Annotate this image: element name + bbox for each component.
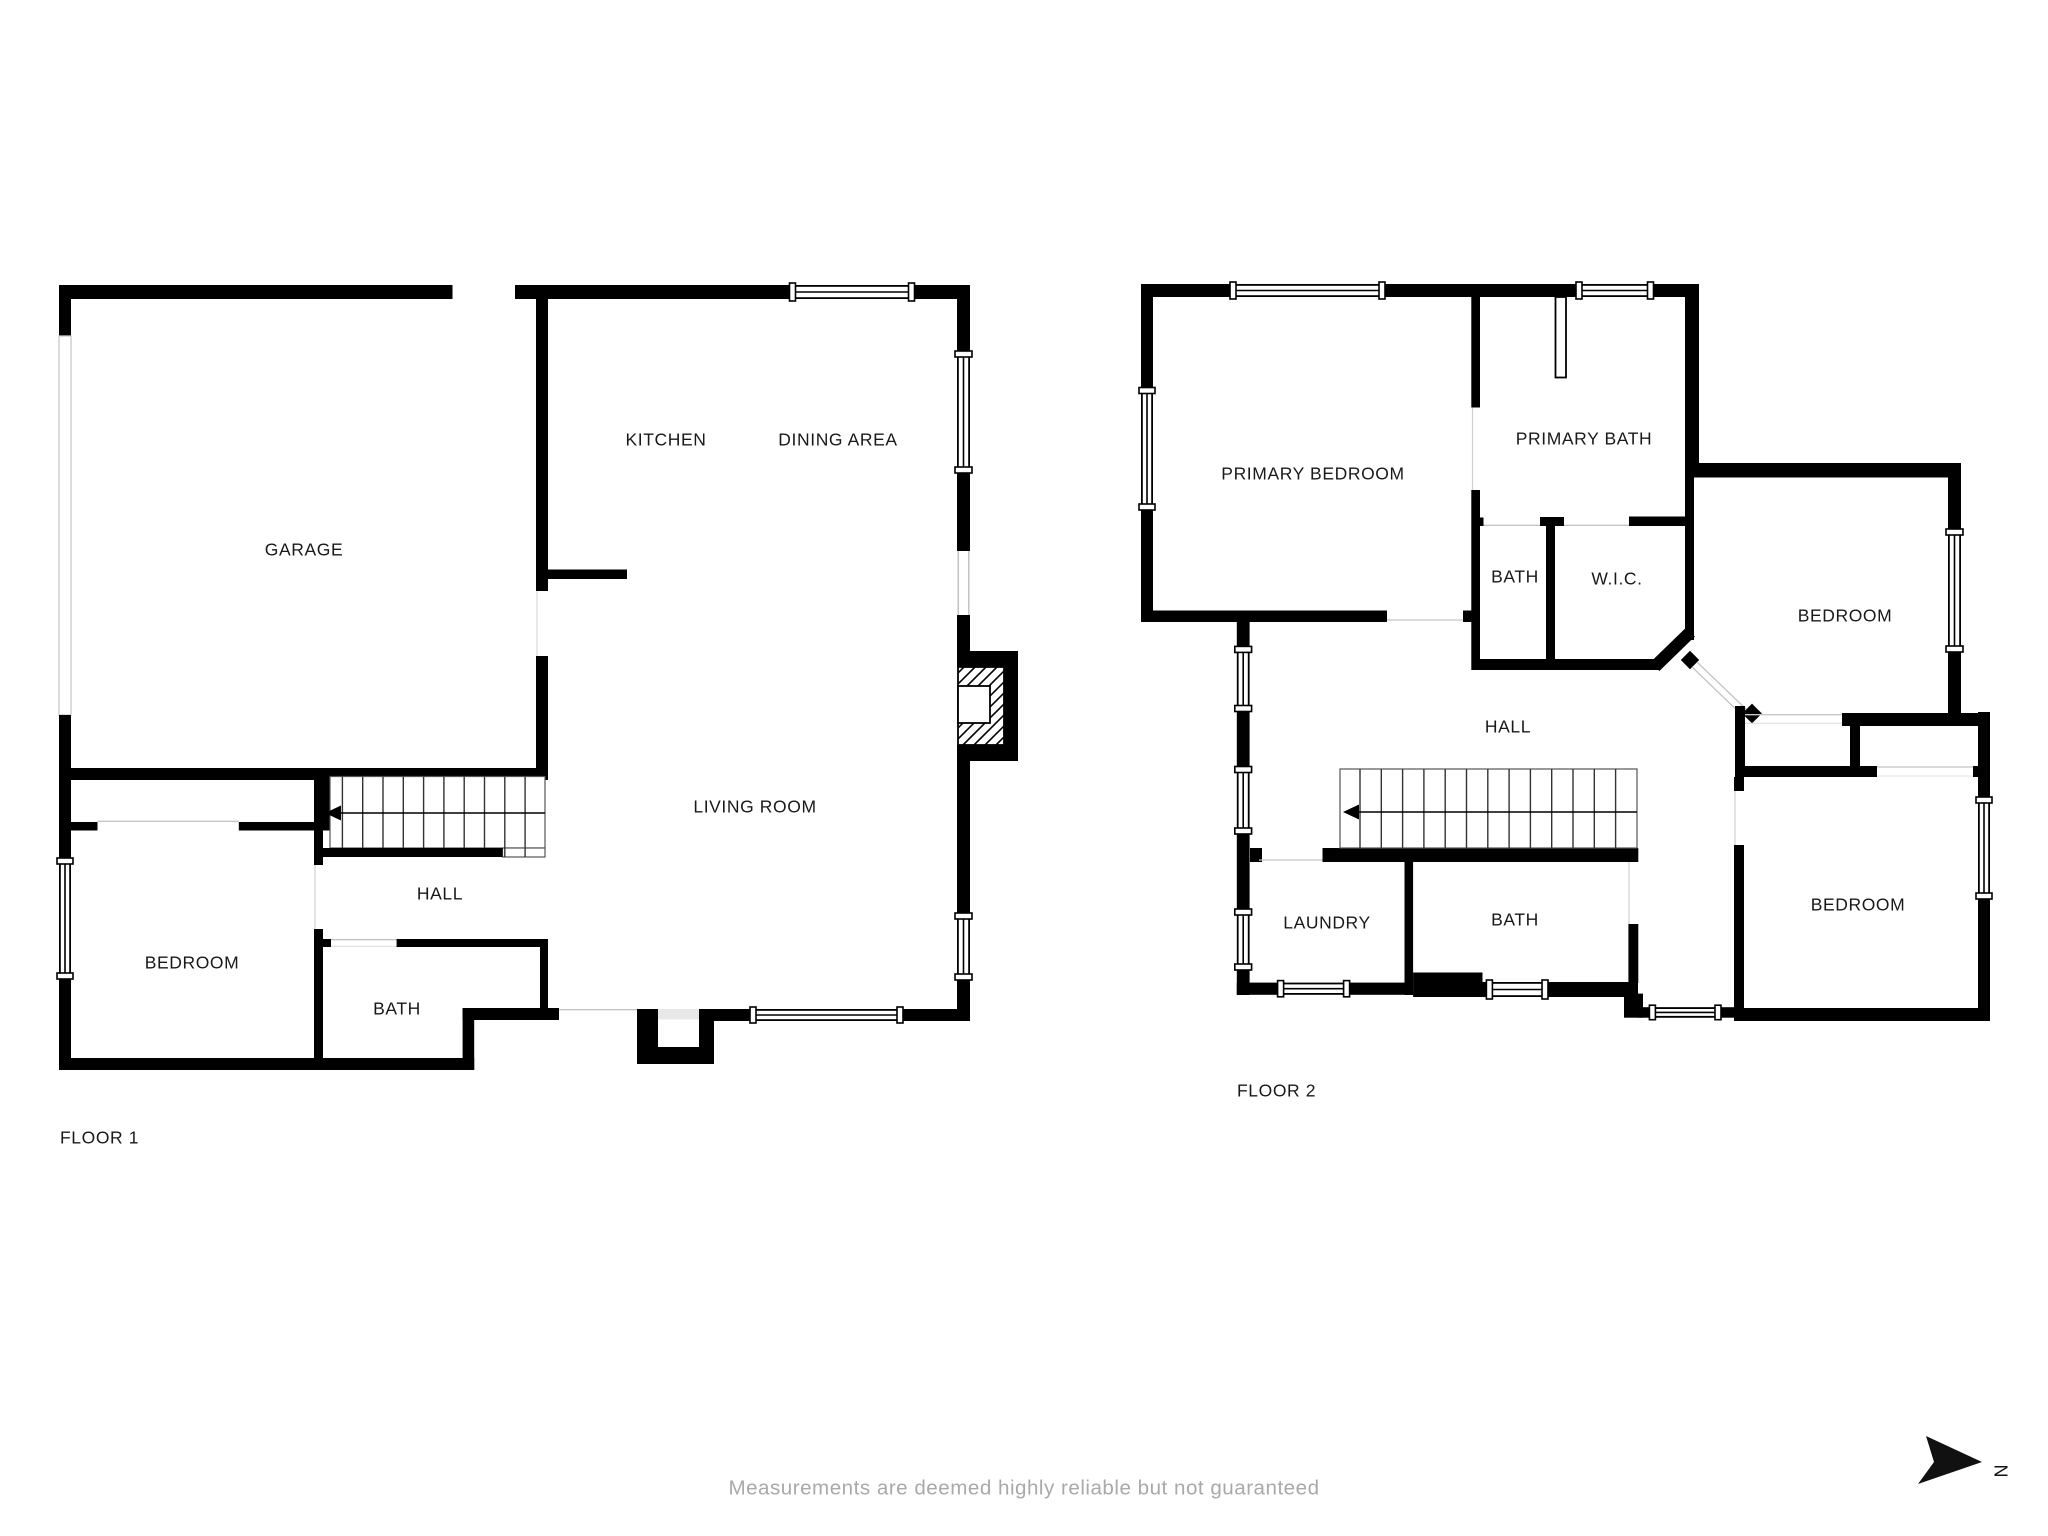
svg-text:W.I.C.: W.I.C. <box>1591 569 1642 589</box>
svg-text:BEDROOM: BEDROOM <box>1811 895 1906 915</box>
svg-text:BEDROOM: BEDROOM <box>1798 606 1893 626</box>
svg-text:KITCHEN: KITCHEN <box>625 430 706 450</box>
svg-text:FLOOR 1: FLOOR 1 <box>60 1128 139 1148</box>
svg-text:HALL: HALL <box>417 884 463 904</box>
svg-text:BATH: BATH <box>373 999 421 1019</box>
svg-text:BATH: BATH <box>1491 910 1539 930</box>
svg-text:GARAGE: GARAGE <box>265 540 343 560</box>
svg-text:DINING AREA: DINING AREA <box>778 430 897 450</box>
svg-text:Measurements are deemed highly: Measurements are deemed highly reliable … <box>728 1476 1319 1499</box>
svg-text:PRIMARY BATH: PRIMARY BATH <box>1516 429 1653 449</box>
svg-text:HALL: HALL <box>1485 717 1531 737</box>
svg-text:BEDROOM: BEDROOM <box>145 953 240 973</box>
svg-text:N: N <box>1990 1465 2010 1478</box>
svg-text:LIVING ROOM: LIVING ROOM <box>693 797 816 817</box>
svg-text:LAUNDRY: LAUNDRY <box>1283 913 1371 933</box>
svg-text:PRIMARY BEDROOM: PRIMARY BEDROOM <box>1221 464 1404 484</box>
svg-text:BATH: BATH <box>1491 567 1539 587</box>
svg-text:FLOOR 2: FLOOR 2 <box>1237 1081 1316 1101</box>
